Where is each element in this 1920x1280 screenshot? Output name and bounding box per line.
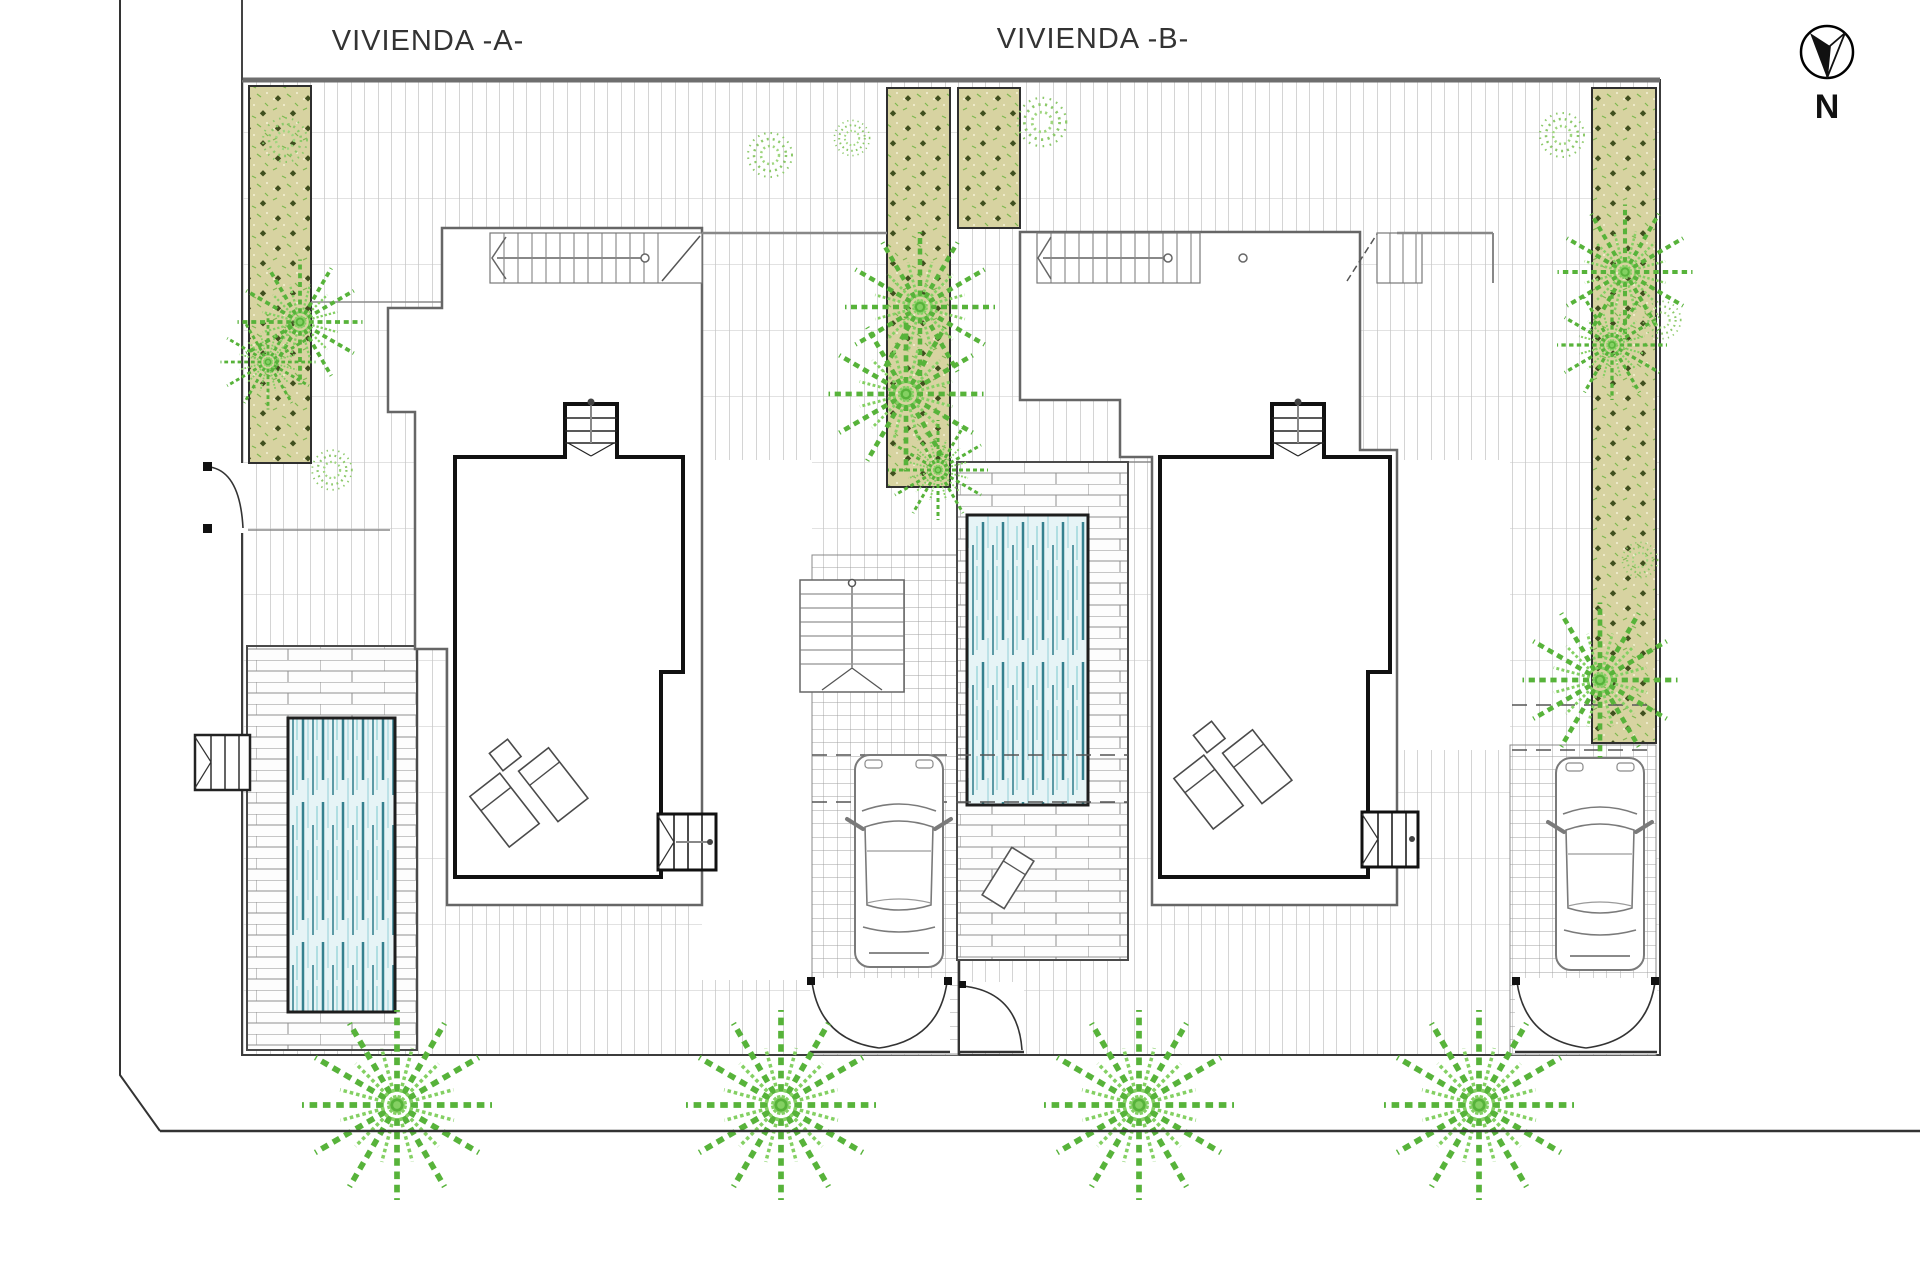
house-a-label: VIVIENDA -A- (332, 25, 525, 57)
site-plan-drawing: VIVIENDA -A- VIVIENDA -B- N (0, 0, 1920, 1280)
pool-a (288, 718, 395, 1012)
site-plan-page: VIVIENDA -A- VIVIENDA -B- N (0, 0, 1920, 1280)
north-label: N (1815, 88, 1840, 126)
car-a (847, 755, 951, 967)
left-entry-steps (195, 735, 250, 790)
north-arrow-icon (1801, 26, 1853, 78)
pool-b (967, 515, 1088, 805)
car-b (1548, 758, 1652, 970)
patio-b-clear-zone (1397, 460, 1510, 750)
house-a-roof-stair (490, 233, 702, 283)
driveway-gate-b (1512, 977, 1659, 1054)
driveway-a-exterior-stair (800, 580, 904, 693)
house-b-stair-interior (1362, 812, 1418, 867)
planter-middle-b (958, 88, 1020, 228)
pedestrian-gate-b (959, 981, 1024, 1053)
driveway-gate-a (807, 977, 952, 1054)
patio-a-clear-zone (702, 460, 812, 980)
house-a-stair-interior (658, 814, 716, 870)
house-b-label: VIVIENDA -B- (997, 23, 1190, 55)
